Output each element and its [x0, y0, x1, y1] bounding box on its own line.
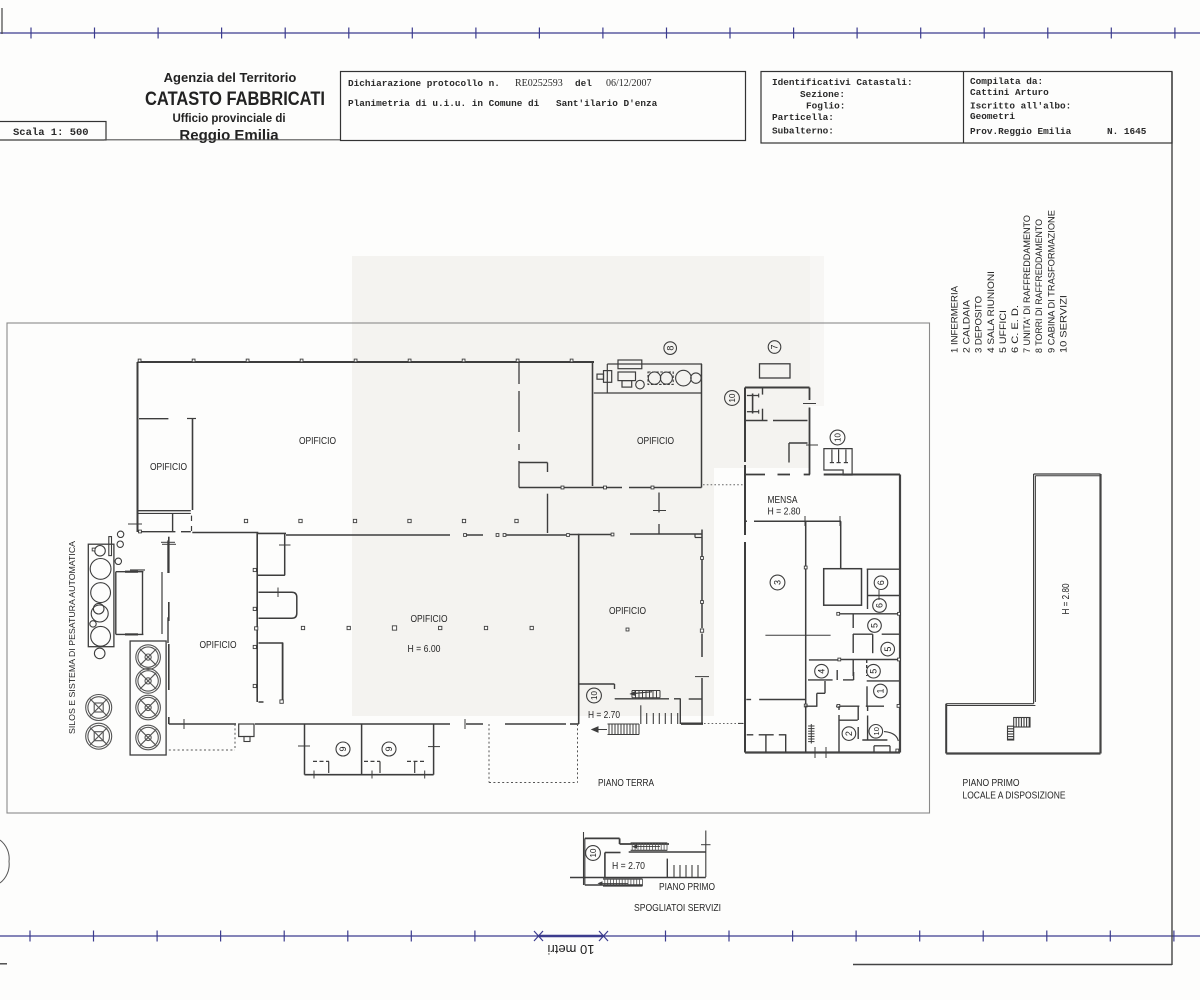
svg-text:Subalterno:: Subalterno: [772, 126, 834, 137]
svg-text:Dichiarazione protocollo n.: Dichiarazione protocollo n. [348, 78, 500, 89]
svg-text:Iscritto all'albo:: Iscritto all'albo: [970, 101, 1071, 112]
svg-text:Compilata da:: Compilata da: [970, 76, 1043, 87]
svg-text:9 CABINA DI TRASFORMAZIONE: 9 CABINA DI TRASFORMAZIONE [1046, 210, 1057, 353]
svg-text:CATASTO FABBRICATI: CATASTO FABBRICATI [145, 89, 325, 110]
svg-text:3 DEPOSITO: 3 DEPOSITO [974, 296, 985, 353]
svg-text:OPIFICIO: OPIFICIO [150, 462, 187, 473]
svg-text:Particella:: Particella: [772, 112, 834, 123]
svg-text:OPIFICIO: OPIFICIO [200, 640, 237, 651]
svg-text:Cattini Arturo: Cattini Arturo [970, 87, 1049, 98]
svg-text:6: 6 [875, 603, 885, 608]
svg-text:5 UFFICI: 5 UFFICI [998, 310, 1009, 353]
svg-text:6: 6 [876, 580, 886, 585]
svg-text:Scala 1: 500: Scala 1: 500 [13, 127, 89, 139]
svg-text:H = 2.70: H = 2.70 [612, 861, 645, 872]
svg-text:Ufficio provinciale di: Ufficio provinciale di [172, 113, 285, 125]
svg-text:8: 8 [665, 346, 675, 351]
svg-text:5: 5 [883, 647, 893, 652]
svg-text:SILOS E SISTEMA DI PESATURA AU: SILOS E SISTEMA DI PESATURA AUTOMATICA [67, 541, 77, 734]
svg-text:PIANO TERRA: PIANO TERRA [598, 778, 654, 789]
svg-text:OPIFICIO: OPIFICIO [609, 606, 646, 617]
svg-text:5: 5 [869, 669, 879, 674]
svg-text:Agenzia del Territorio: Agenzia del Territorio [164, 70, 297, 85]
svg-text:H = 2.80: H = 2.80 [1061, 583, 1072, 614]
svg-text:RE0252593: RE0252593 [515, 78, 563, 89]
svg-text:10 SERVIZI: 10 SERVIZI [1058, 295, 1069, 353]
svg-text:2 CALDAIA: 2 CALDAIA [962, 299, 973, 353]
svg-text:Sezione:: Sezione: [800, 89, 845, 100]
svg-text:N. 1645: N. 1645 [1107, 126, 1147, 137]
svg-text:9: 9 [384, 746, 394, 751]
svg-text:10 metri: 10 metri [547, 942, 594, 957]
svg-text:10: 10 [589, 848, 598, 857]
svg-text:Prov.Reggio Emilia: Prov.Reggio Emilia [970, 126, 1072, 137]
svg-text:H = 2.70: H = 2.70 [588, 710, 620, 721]
svg-text:OPIFICIO: OPIFICIO [637, 436, 674, 447]
svg-text:06/12/2007: 06/12/2007 [606, 78, 652, 89]
svg-text:3: 3 [773, 580, 783, 585]
svg-text:Foglio:: Foglio: [806, 101, 845, 112]
svg-text:Identificativi Catastali:: Identificativi Catastali: [772, 77, 913, 88]
svg-text:Geometri: Geometri [970, 111, 1015, 122]
svg-text:10: 10 [590, 691, 599, 700]
svg-text:5: 5 [870, 623, 880, 628]
svg-text:MENSA: MENSA [768, 495, 798, 506]
svg-text:10: 10 [872, 727, 881, 735]
svg-text:8 TORRI DI RAFFREDDAMENTO: 8 TORRI DI RAFFREDDAMENTO [1034, 219, 1045, 353]
svg-text:LOCALE A DISPOSIZIONE: LOCALE A DISPOSIZIONE [963, 791, 1066, 802]
svg-text:Reggio Emilia: Reggio Emilia [179, 127, 279, 144]
svg-text:PIANO PRIMO: PIANO PRIMO [963, 778, 1020, 789]
svg-text:6 C. E. D.: 6 C. E. D. [1010, 305, 1021, 353]
svg-text:7: 7 [770, 344, 780, 349]
svg-text:2: 2 [844, 731, 854, 736]
svg-text:4: 4 [817, 669, 827, 674]
svg-text:10: 10 [834, 433, 843, 442]
svg-text:1 INFERMERIA: 1 INFERMERIA [950, 285, 961, 353]
svg-text:9: 9 [338, 746, 348, 751]
svg-text:OPIFICIO: OPIFICIO [411, 614, 448, 625]
svg-text:del: del [575, 78, 592, 89]
svg-text:H = 6.00: H = 6.00 [408, 644, 441, 655]
svg-text:SPOGLIATOI SERVIZI: SPOGLIATOI SERVIZI [634, 903, 721, 914]
svg-text:1: 1 [876, 688, 886, 693]
svg-text:10: 10 [728, 393, 737, 402]
svg-text:Sant'ilario D'enza: Sant'ilario D'enza [556, 98, 658, 109]
svg-text:7 UNITA' DI RAFFREDDAMENTO: 7 UNITA' DI RAFFREDDAMENTO [1022, 215, 1033, 353]
svg-text:H = 2.80: H = 2.80 [768, 507, 801, 518]
svg-text:PIANO PRIMO: PIANO PRIMO [659, 882, 715, 893]
svg-text:Planimetria di u.i.u. in Comun: Planimetria di u.i.u. in Comune di [348, 98, 540, 109]
svg-text:4 SALA RIUNIONI: 4 SALA RIUNIONI [986, 271, 997, 353]
svg-text:OPIFICIO: OPIFICIO [299, 436, 336, 447]
